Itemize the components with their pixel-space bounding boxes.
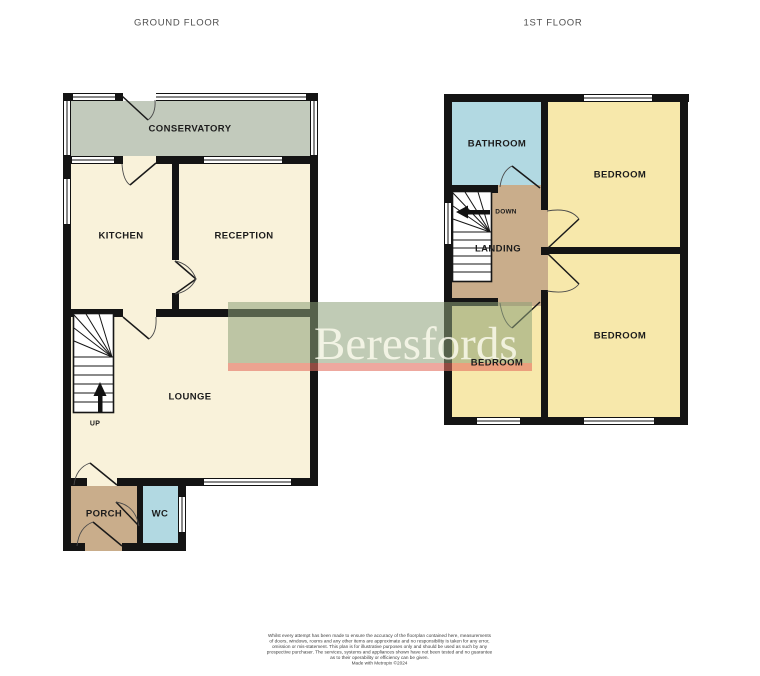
window — [444, 202, 452, 245]
disclaimer-credit: Made with Metropix ©2024 — [247, 660, 512, 665]
ground-floor-title: GROUND FLOOR — [134, 18, 220, 29]
door-opening — [123, 93, 156, 101]
wall — [548, 247, 680, 254]
window — [203, 156, 283, 164]
wall — [444, 94, 452, 425]
window — [310, 100, 318, 156]
wall — [172, 293, 179, 309]
watermark-brand: Beresfords — [314, 321, 518, 368]
wall — [452, 185, 498, 193]
disclaimer-text: Whilst every attempt has been made to en… — [247, 633, 512, 666]
window — [71, 156, 115, 164]
window — [203, 478, 292, 486]
room-label-reception: RECEPTION — [214, 231, 273, 242]
wall-post — [115, 93, 123, 101]
room-label-conservatory: CONSERVATORY — [149, 124, 232, 135]
window — [583, 94, 653, 102]
wall-post — [306, 93, 318, 101]
room-label-lounge: LOUNGE — [168, 392, 211, 403]
room-label-bedroom-rear: BEDROOM — [594, 331, 646, 342]
window — [63, 93, 318, 101]
room-label-bathroom: BATHROOM — [468, 139, 526, 150]
stairs-up-label: UP — [90, 421, 100, 428]
room-label-porch: PORCH — [86, 509, 122, 520]
wall — [63, 309, 123, 317]
room-label-landing: LANDING — [475, 244, 521, 255]
wall — [122, 543, 186, 551]
wall-post — [63, 93, 73, 101]
wall — [63, 543, 85, 551]
wall — [541, 247, 548, 255]
wall — [63, 478, 87, 486]
wall — [541, 102, 548, 210]
stairs-down-label: DOWN — [495, 209, 516, 216]
window — [63, 100, 71, 156]
window — [476, 417, 521, 425]
wall — [680, 94, 688, 425]
window — [583, 417, 655, 425]
first-floor-title: 1ST FLOOR — [524, 18, 583, 29]
wall — [137, 486, 143, 543]
room-label-bedroom-front: BEDROOM — [594, 170, 646, 181]
room-label-kitchen: KITCHEN — [98, 231, 143, 242]
window — [63, 178, 71, 225]
wall — [541, 290, 548, 417]
floorplan-page: GROUND FLOOR 1ST FLOOR — [0, 0, 760, 676]
wall — [172, 164, 179, 260]
room-label-wc: WC — [152, 509, 169, 520]
window — [178, 496, 186, 533]
